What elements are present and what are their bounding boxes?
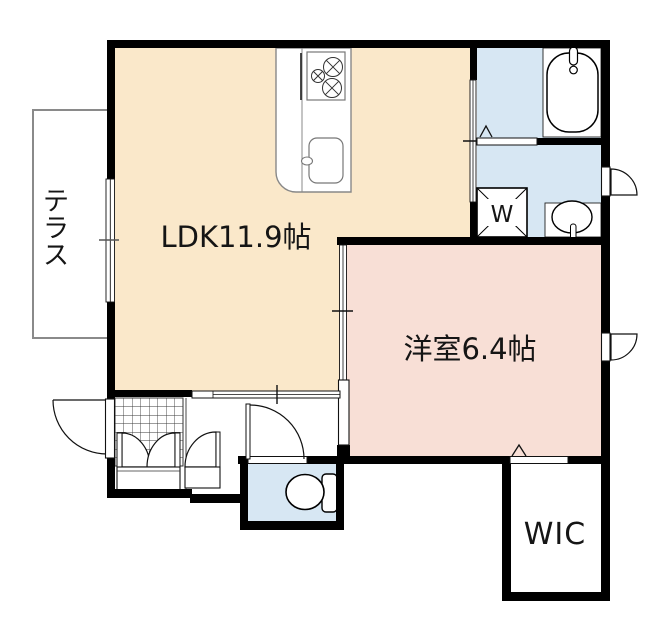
- wic-label: WIC: [524, 517, 586, 552]
- wall-wic-right: [601, 464, 610, 601]
- kitchen: [276, 48, 351, 192]
- ldk-label: LDK11.9帖: [160, 220, 311, 254]
- wall-ldk-washroom-upper: [470, 48, 477, 80]
- entrance-area: [115, 398, 220, 490]
- hall-storage-door: [185, 432, 216, 467]
- floor-plan-drawing: W: [0, 0, 657, 635]
- entrance-door-leaf: [106, 399, 115, 458]
- kitchen-faucet: [302, 157, 313, 165]
- bathroom-fixtures: [543, 47, 601, 137]
- kitchen-sink: [309, 138, 343, 183]
- toilet-door: [246, 404, 307, 464]
- wall-toilet-right: [336, 456, 344, 530]
- toilet-door-sill: [248, 457, 307, 464]
- stove-burner-2: [312, 70, 325, 83]
- wall-toilet-left: [240, 456, 248, 530]
- wall-toilet-top-right: [307, 456, 340, 464]
- wall-toilet-bottom: [240, 521, 344, 530]
- washroom-exterior-door-leaf: [602, 167, 611, 196]
- washroom-exterior-door-arc: [611, 169, 637, 195]
- wall-western-top: [337, 237, 608, 245]
- western-room-label: 洋室6.4帖: [403, 332, 536, 366]
- shoe-cabinet-leaf-right: [175, 433, 180, 467]
- washing-machine-space: W: [477, 188, 527, 237]
- wall-hall-bottom: [190, 494, 247, 503]
- hall-storage-body: [185, 467, 220, 488]
- washer-label: W: [491, 202, 514, 228]
- wall-bath-divider: [537, 138, 603, 145]
- wall-left-mid: [107, 302, 115, 400]
- western-sliding-panel: [339, 380, 350, 445]
- shoe-cabinet-leaf-left: [117, 433, 122, 467]
- wall-western-bottom-left: [337, 456, 512, 464]
- wall-right-upper: [601, 40, 610, 167]
- wall-right-lower: [601, 361, 610, 464]
- floor-plan-page: W: [0, 0, 657, 635]
- wall-western-bottom-right: [568, 456, 609, 464]
- entrance-door-arc: [53, 400, 107, 454]
- hall-storage-leaf: [216, 432, 220, 467]
- wall-top: [107, 40, 608, 48]
- wall-entrance-bottom: [107, 489, 192, 498]
- washroom-exterior-door: [602, 167, 638, 196]
- terrace-char-1: テ: [43, 187, 69, 217]
- terrace-char-3: ス: [43, 241, 69, 271]
- western-exterior-door-arc: [611, 334, 637, 360]
- stove-burner-3: [323, 79, 342, 98]
- bathtub-drain: [570, 66, 578, 74]
- wall-wic-bottom: [502, 592, 610, 601]
- western-exterior-door: [602, 333, 638, 361]
- room-fills: [115, 48, 601, 592]
- terrace-char-2: ラ: [43, 214, 69, 244]
- western-exterior-door-leaf: [602, 333, 611, 361]
- terrace-label: テ ラ ス: [43, 187, 69, 271]
- wall-wic-left: [502, 464, 511, 601]
- entrance-door: [53, 399, 115, 458]
- bathtub-faucet: [570, 47, 578, 65]
- shoe-cabinet-body: [117, 467, 180, 490]
- toilet-bowl: [286, 475, 324, 510]
- toilet-door-leaf: [246, 404, 250, 459]
- wall-left-upper: [107, 40, 115, 179]
- stove-burner-1: [324, 58, 343, 77]
- wall-right-mid: [601, 196, 610, 333]
- wall-ldk-bottom: [107, 390, 192, 397]
- toilet-fixtures: [286, 474, 337, 512]
- toilet-door-arc: [250, 405, 304, 459]
